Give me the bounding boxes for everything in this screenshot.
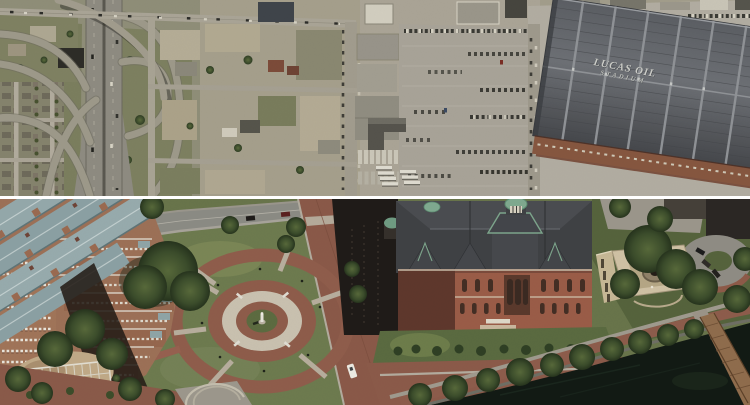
photo-grain-top	[0, 0, 750, 196]
aerial-photo-collage: LUCAS OIL STADIUM	[0, 0, 750, 405]
oblique-aerial-photo	[0, 199, 750, 405]
satellite-photo: LUCAS OIL STADIUM	[0, 0, 750, 196]
photo-grain-bottom	[0, 199, 750, 405]
